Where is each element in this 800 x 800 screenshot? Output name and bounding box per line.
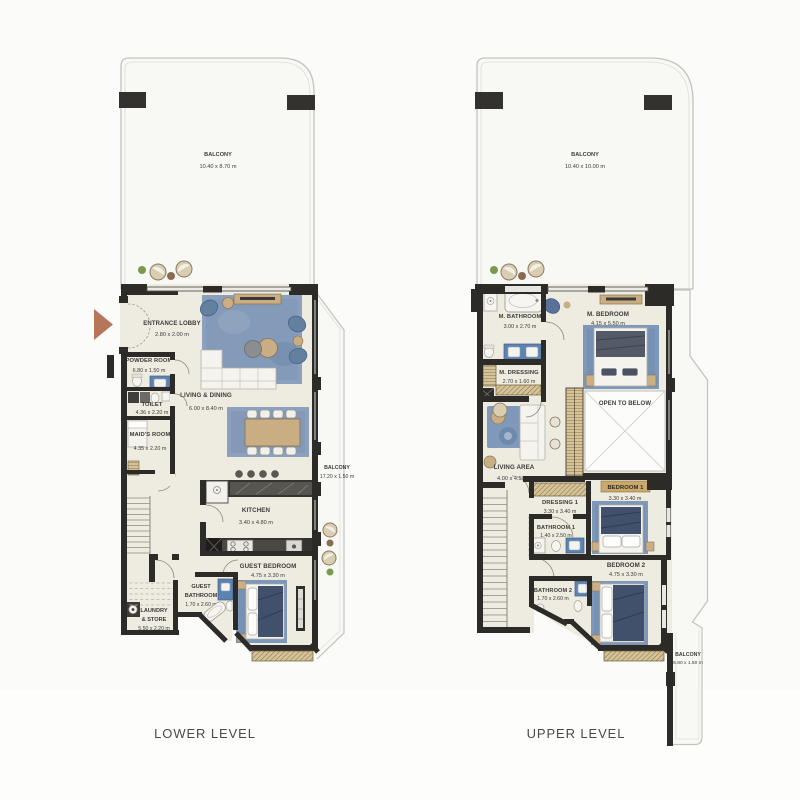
svg-text:4.75 x 3.30 m: 4.75 x 3.30 m [251,573,285,579]
svg-text:BATHROOM: BATHROOM [185,593,218,599]
svg-text:GUEST BEDROOM: GUEST BEDROOM [240,563,297,570]
svg-text:17.20 x 1.50 m: 17.20 x 1.50 m [320,474,354,480]
svg-text:M. BEDROOM: M. BEDROOM [587,311,629,318]
svg-text:LOWER LEVEL: LOWER LEVEL [154,726,256,741]
svg-text:BEDROOM 2: BEDROOM 2 [607,562,646,569]
svg-text:LIVING & DINING: LIVING & DINING [180,392,232,399]
svg-text:BALCONY: BALCONY [204,152,232,158]
svg-text:4.36 x 2.20 m: 4.36 x 2.20 m [136,410,169,416]
svg-text:BEDROOM 1: BEDROOM 1 [607,485,644,491]
svg-text:& STORE: & STORE [142,617,167,623]
svg-text:LAUNDRY: LAUNDRY [140,608,167,614]
svg-text:6.00 x 8.40 m: 6.00 x 8.40 m [189,406,223,412]
svg-text:BALCONY: BALCONY [675,652,701,658]
svg-text:TOILET: TOILET [141,402,162,408]
svg-text:BALCONY: BALCONY [324,465,350,471]
svg-text:3.00 x 2.70 m: 3.00 x 2.70 m [504,324,537,330]
svg-text:M. BATHROOM: M. BATHROOM [499,314,542,320]
svg-text:6.80 x 1.50 m: 6.80 x 1.50 m [673,660,703,666]
svg-text:BATHROOM 2: BATHROOM 2 [534,588,572,594]
svg-text:OPEN TO BELOW: OPEN TO BELOW [599,401,651,407]
svg-text:2.70 x 1.60 m: 2.70 x 1.60 m [503,379,536,385]
svg-text:10.40 x 8.70 m: 10.40 x 8.70 m [199,164,236,170]
svg-text:BALCONY: BALCONY [571,152,599,158]
svg-text:10.40 x 10.00 m: 10.40 x 10.00 m [565,164,605,170]
svg-text:4.35 x 2.20 m: 4.35 x 2.20 m [134,446,167,452]
svg-text:UPPER LEVEL: UPPER LEVEL [527,726,626,741]
svg-text:4.75 x 3.30 m: 4.75 x 3.30 m [609,572,643,578]
svg-text:M. DRESSING: M. DRESSING [499,370,539,376]
svg-text:POWDER ROOM: POWDER ROOM [126,358,173,364]
svg-text:KITCHEN: KITCHEN [242,507,271,514]
svg-text:3.40 x 4.80 m: 3.40 x 4.80 m [239,520,273,526]
svg-text:DRESSING 1: DRESSING 1 [542,500,579,506]
svg-text:MAID'S ROOM: MAID'S ROOM [130,432,171,438]
svg-text:GUEST: GUEST [191,584,211,590]
svg-text:LIVING AREA: LIVING AREA [494,464,535,471]
svg-text:1.70 x 2.60 m: 1.70 x 2.60 m [537,596,568,602]
svg-text:6.80 x 1.50 m: 6.80 x 1.50 m [133,368,166,374]
svg-text:ENTRANCE LOBBY: ENTRANCE LOBBY [143,321,200,327]
svg-text:2.80 x 2.00 m: 2.80 x 2.00 m [155,332,189,338]
